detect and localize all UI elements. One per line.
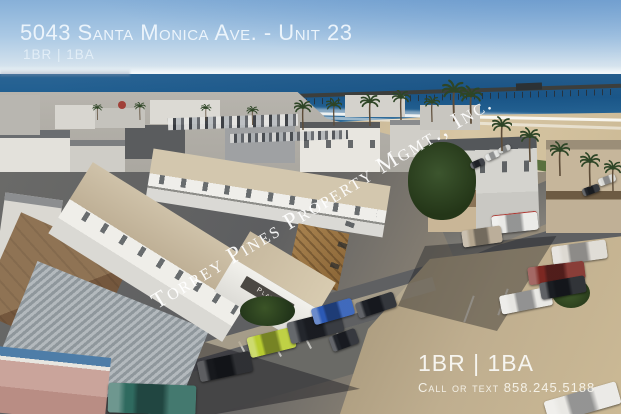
shrub (240, 296, 295, 326)
palm-tree (134, 102, 146, 120)
footer-contact-block: 1BR | 1BA Call or text 858.245.5188 (418, 350, 595, 395)
palm-tree (246, 106, 259, 125)
footer-beds-baths: 1BR | 1BA (418, 350, 595, 377)
town-building (0, 95, 40, 135)
listing-title: 5043 Santa Monica Ave. - Unit 23 (20, 20, 352, 46)
palm-tree (326, 98, 342, 126)
palm-tree (604, 158, 621, 194)
palm-tree (294, 100, 312, 130)
palm-tree (520, 124, 540, 166)
palm-tree (492, 112, 512, 156)
listing-beds-baths: 1BR | 1BA (23, 47, 95, 62)
footer-contact: Call or text 858.245.5188 (418, 380, 595, 395)
palm-tree (200, 104, 212, 121)
palm-tree (580, 150, 600, 190)
beachfront-building-windows (304, 140, 376, 148)
palm-tree (392, 90, 410, 120)
car-teal-truck (108, 382, 197, 414)
palm-tree (92, 104, 103, 120)
listing-photo: Playa 5043 Santa Monica Ave. - Unit 23 1… (0, 0, 621, 414)
distant-ridge (0, 69, 130, 76)
palm-tree (550, 138, 570, 180)
town-building (55, 105, 95, 129)
pier-building (516, 83, 542, 91)
palm-tree (360, 94, 380, 126)
rooftop-umbrella (118, 101, 126, 109)
pink-building (0, 346, 111, 414)
